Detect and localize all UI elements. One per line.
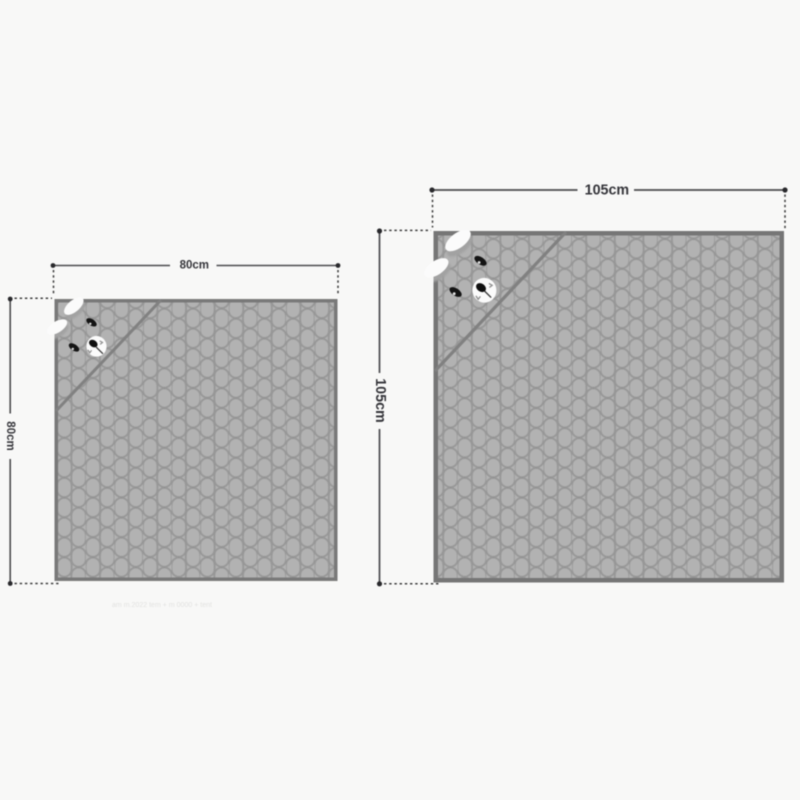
svg-text:am m.2022 tem + m 0000 + tent: am m.2022 tem + m 0000 + tent [112, 602, 212, 609]
svg-text:105cm: 105cm [372, 378, 388, 423]
svg-text:105cm: 105cm [585, 182, 630, 198]
svg-text:80cm: 80cm [4, 421, 16, 450]
svg-text:80cm: 80cm [180, 259, 209, 271]
